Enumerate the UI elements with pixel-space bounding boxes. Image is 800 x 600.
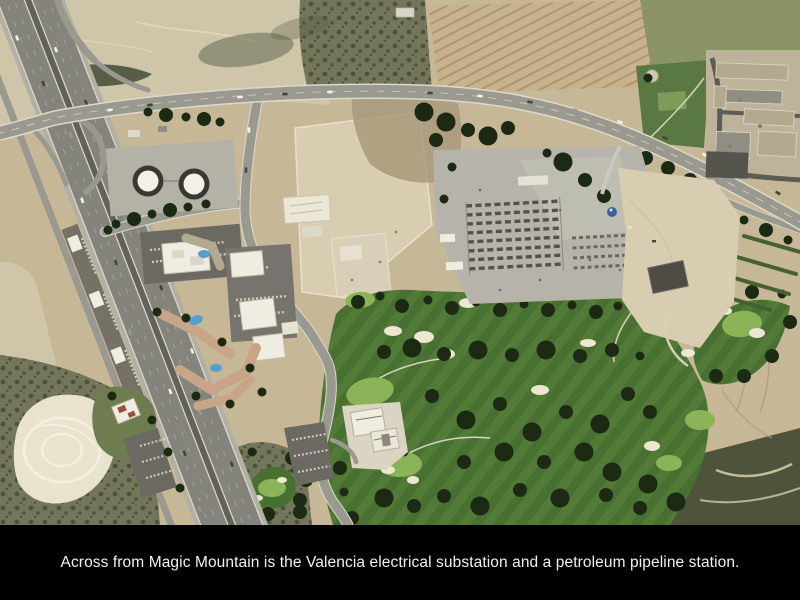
condo-building	[744, 109, 795, 127]
row-crop-field	[428, 0, 656, 94]
office-building	[239, 298, 276, 330]
building-slab	[302, 225, 323, 237]
aerial-photo-graphic	[0, 0, 800, 525]
trailer	[446, 262, 463, 271]
swimming-pool	[210, 364, 222, 372]
office-building	[230, 251, 264, 278]
condo-building	[722, 89, 782, 104]
putting-green	[656, 455, 682, 471]
staging-structure	[396, 8, 414, 17]
trailer	[440, 234, 455, 243]
swimming-pool	[198, 250, 210, 258]
graded-pad	[331, 233, 391, 296]
condo-building	[716, 63, 788, 81]
aerial-photo	[0, 0, 800, 525]
photo-caption: Across from Magic Mountain is the Valenc…	[61, 554, 740, 572]
park-field	[657, 91, 686, 111]
putting-green	[685, 410, 715, 430]
storage-tank	[184, 174, 205, 195]
yard-building	[518, 175, 548, 186]
condo-building	[757, 131, 796, 157]
storage-tank	[138, 171, 159, 192]
slide-frame: Across from Magic Mountain is the Valenc…	[0, 0, 800, 600]
caption-band: Across from Magic Mountain is the Valenc…	[0, 525, 800, 600]
blue-dome-tank	[607, 207, 617, 217]
building-slab	[283, 194, 331, 223]
